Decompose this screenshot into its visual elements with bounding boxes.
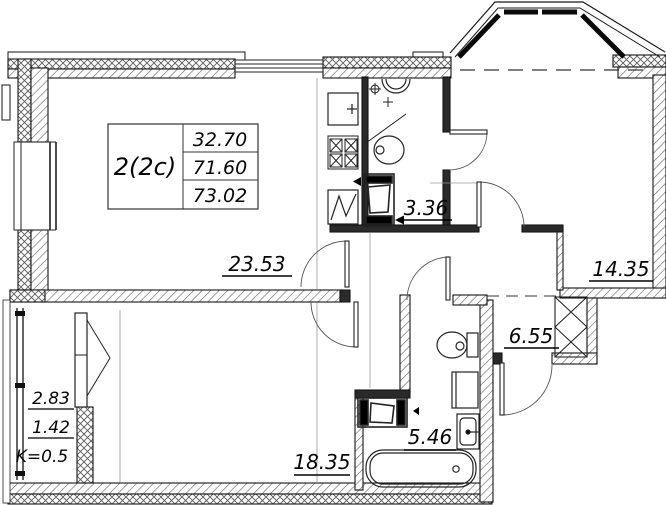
doors <box>301 130 552 415</box>
washbasin-icon <box>382 79 410 93</box>
washing-machine2-icon <box>358 398 407 427</box>
floor-plan-page: 2(2c) 32.70 71.60 73.02 23.53 3.36 14.35… <box>0 0 666 505</box>
balcony-counted-area-label: 1.42 <box>32 418 70 438</box>
kitchen-window-icon <box>235 60 323 72</box>
wardrobe-icon <box>555 297 587 357</box>
floor-plan-drawing: 2(2c) 32.70 71.60 73.02 23.53 3.36 14.35… <box>0 0 666 505</box>
entrance-door[interactable] <box>500 363 552 415</box>
unit-type-label: 2(2c) <box>114 153 176 181</box>
bedroom-door[interactable] <box>477 182 524 227</box>
bedroom-area-label: 14.35 <box>592 257 649 281</box>
walls <box>2 52 666 504</box>
bathtub-icon <box>366 450 476 487</box>
living-kitchen-area-label: 23.53 <box>228 252 285 276</box>
label-arrow-icon <box>395 216 404 225</box>
bathroom-small-door[interactable] <box>449 130 487 170</box>
balcony-coefficient-label: K=0.5 <box>16 447 68 467</box>
toilet-icon <box>374 136 404 164</box>
living-area-value: 32.70 <box>193 129 247 151</box>
living-room-door[interactable] <box>301 241 349 287</box>
hallway-area-label: 6.55 <box>509 324 554 348</box>
balcony-full-area-label: 2.83 <box>32 389 70 409</box>
pointer-triangle2-icon <box>413 407 419 415</box>
living-window-icon <box>14 142 56 230</box>
room-lower-door[interactable] <box>311 302 358 347</box>
toilet2-icon <box>437 332 478 358</box>
balcony-door-icon[interactable] <box>75 313 110 407</box>
area-no-balcony-value: 71.60 <box>193 157 247 179</box>
balcony-glazing-icon <box>3 300 25 503</box>
bathroom-large-door[interactable] <box>407 257 450 300</box>
washing-machine-icon <box>364 174 394 226</box>
unit-info-box: 2(2c) 32.70 71.60 73.02 <box>108 124 258 209</box>
boiler-cabinet-icon <box>452 372 478 408</box>
fridge-icon <box>328 190 358 224</box>
total-area-value: 73.02 <box>193 185 247 207</box>
pointer-triangle-icon <box>353 177 361 186</box>
room-lower-area-label: 18.35 <box>293 450 350 474</box>
bathroom-sink-icon <box>457 414 479 449</box>
stove-icon <box>328 136 358 169</box>
bathroom-large-fixtures <box>358 332 479 487</box>
kitchen-fixtures <box>328 93 361 224</box>
bathroom-small-area-label: 3.36 <box>404 196 449 220</box>
kitchen-sink-icon <box>328 93 358 125</box>
bathroom-large-area-label: 5.46 <box>408 425 453 449</box>
